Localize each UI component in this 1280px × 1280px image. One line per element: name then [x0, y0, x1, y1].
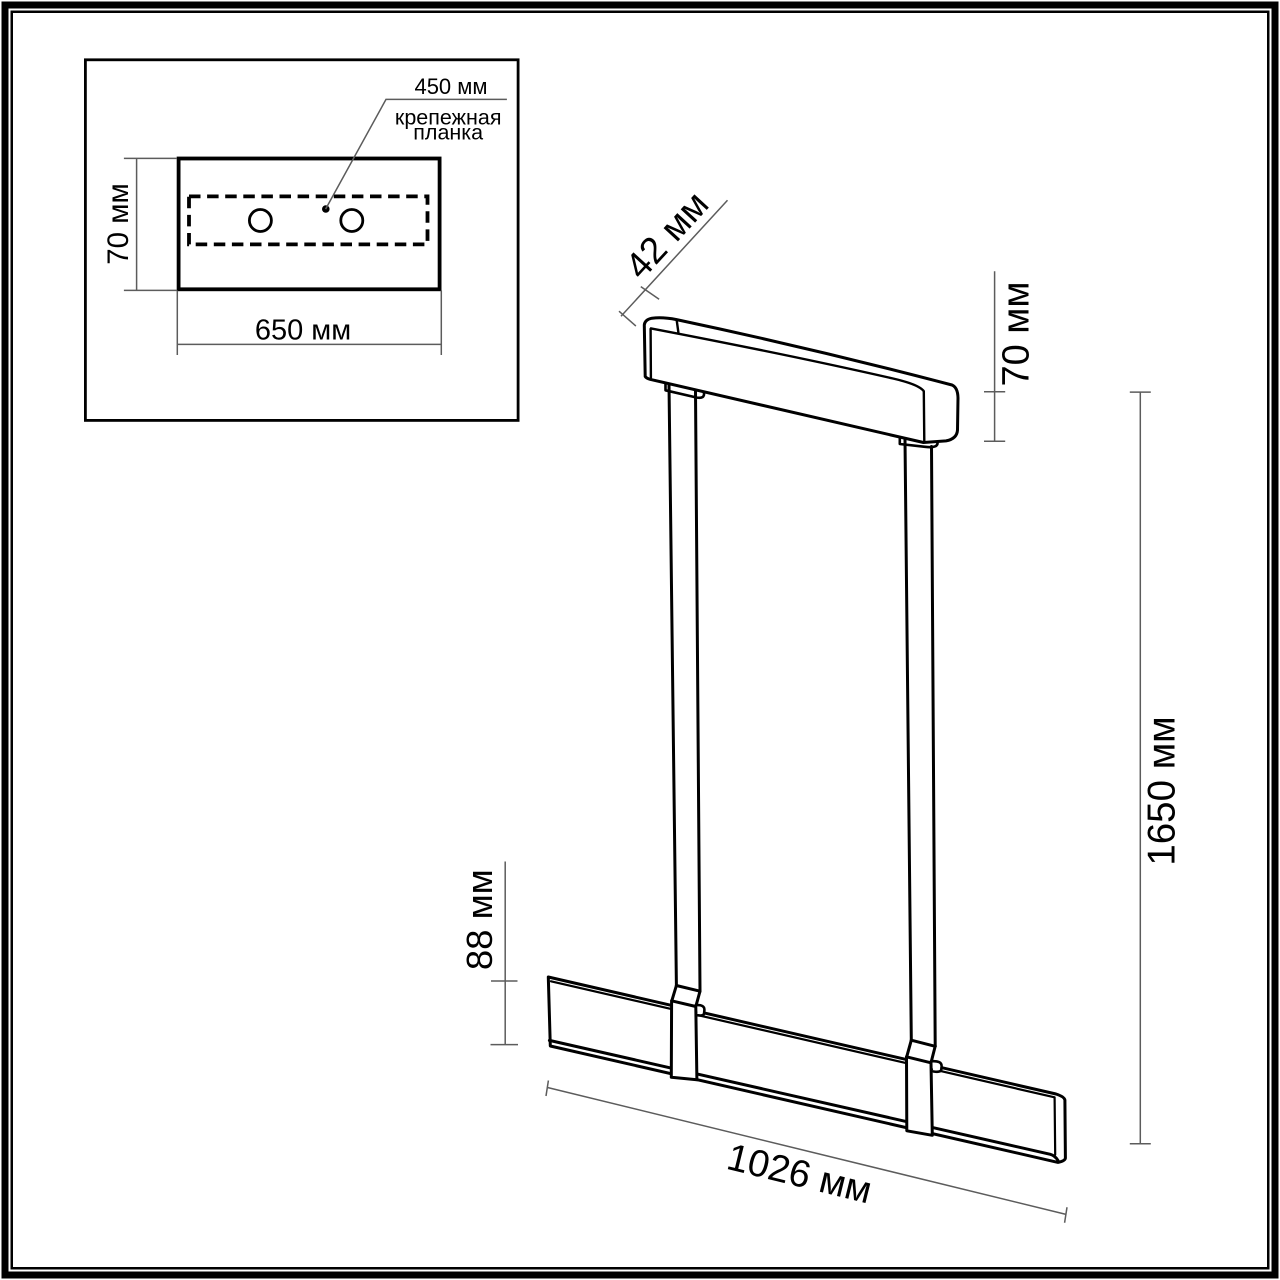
- svg-text:планка: планка: [413, 120, 483, 144]
- svg-text:42 мм: 42 мм: [617, 183, 716, 286]
- svg-text:70 мм: 70 мм: [102, 183, 135, 265]
- svg-text:1650 мм: 1650 мм: [1141, 716, 1184, 865]
- svg-text:1026 мм: 1026 мм: [723, 1136, 876, 1212]
- svg-text:88 мм: 88 мм: [459, 869, 500, 970]
- svg-text:650 мм: 650 мм: [255, 315, 351, 347]
- svg-text:450 мм: 450 мм: [414, 74, 487, 99]
- svg-text:70 мм: 70 мм: [996, 281, 1038, 386]
